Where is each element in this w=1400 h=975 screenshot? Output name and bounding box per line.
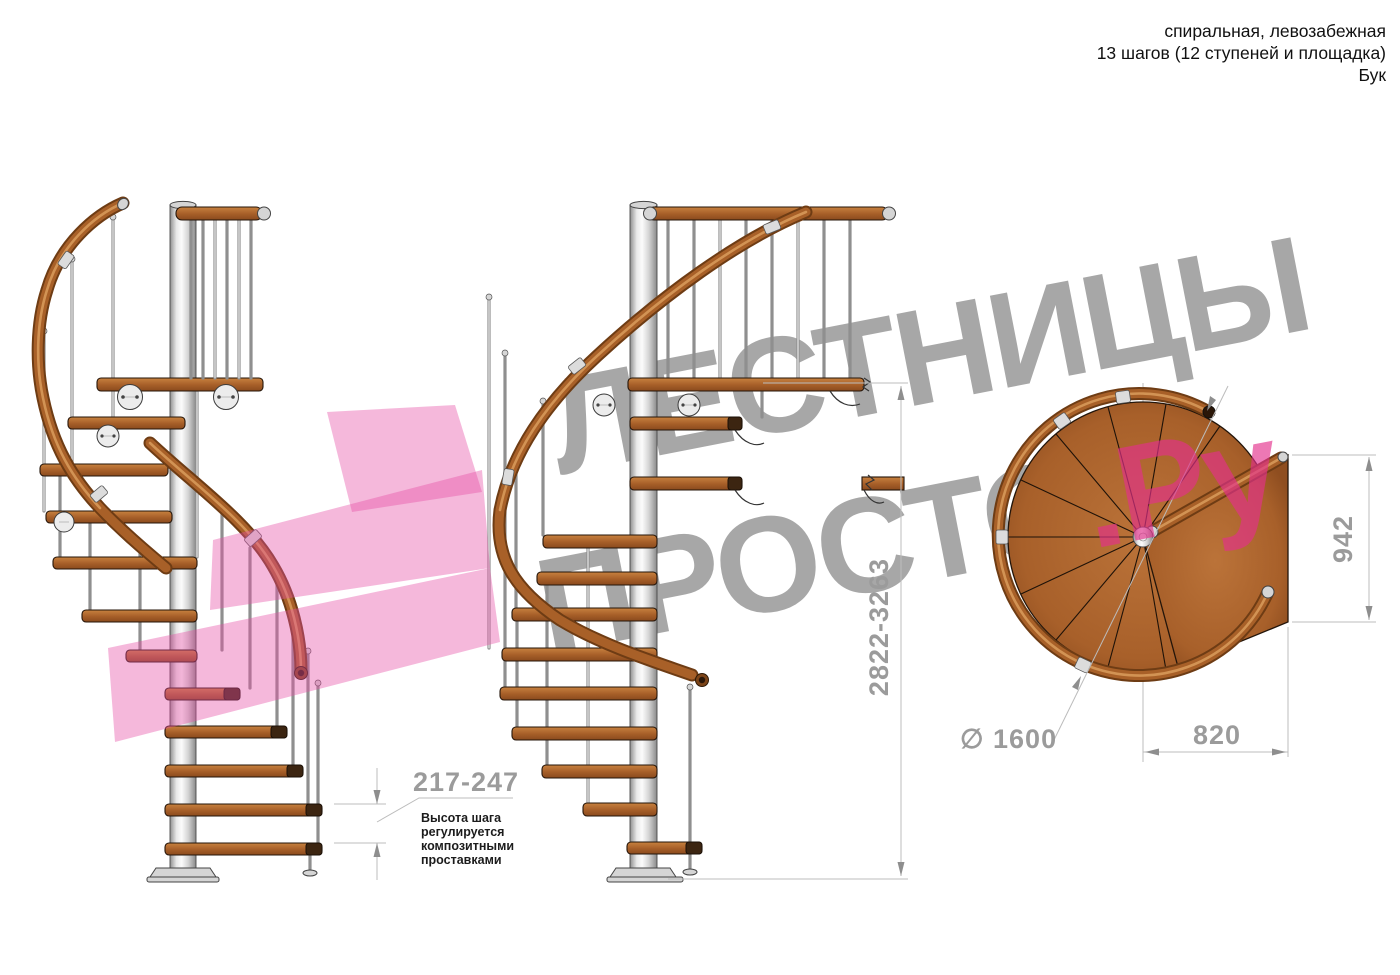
spec-steps: 13 шагов (12 ступеней и площадка) <box>1097 42 1386 64</box>
spec-header: спиральная, левозабежная 13 шагов (12 ст… <box>1097 20 1386 86</box>
drawing-sheet: ЛЕСТНИЦЫ ПРОСТО.Ру <box>0 0 1400 975</box>
spec-material: Бук <box>1097 64 1386 86</box>
spec-type: спиральная, левозабежная <box>1097 20 1386 42</box>
